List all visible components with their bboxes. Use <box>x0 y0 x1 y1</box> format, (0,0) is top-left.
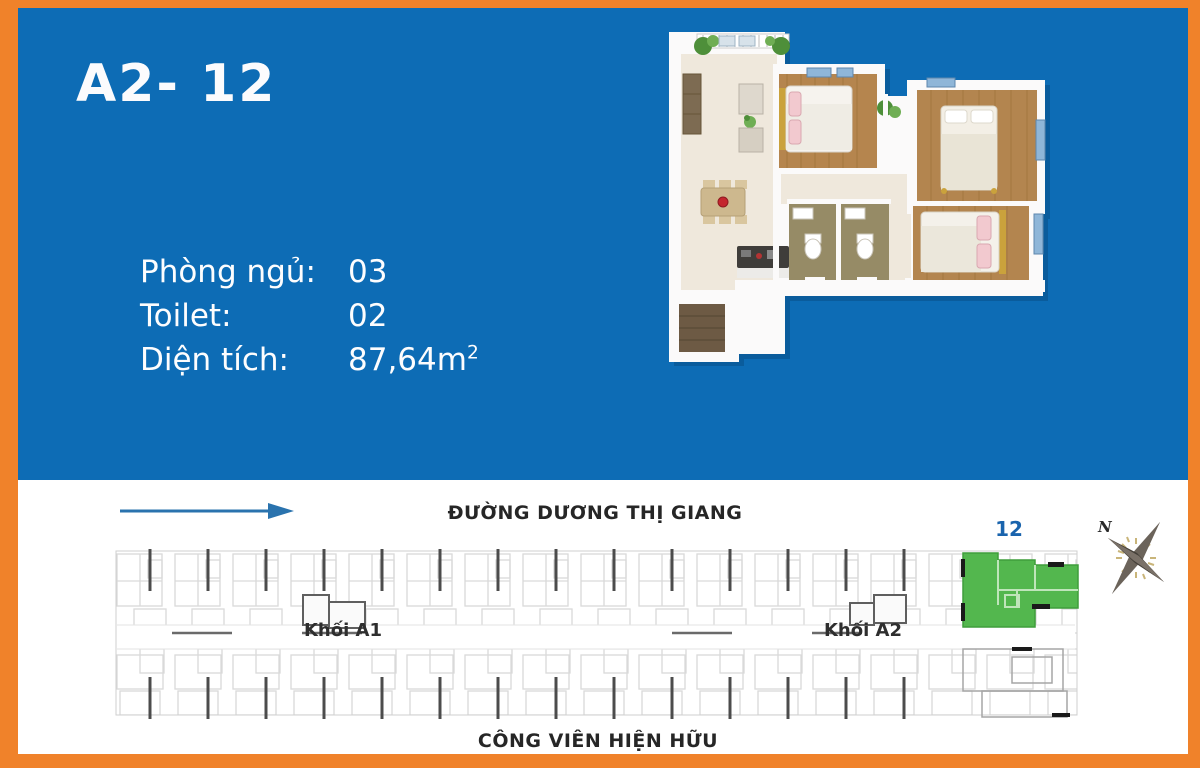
balcony <box>679 304 725 352</box>
spec-label: Diện tích: <box>140 338 348 382</box>
spec-label: Toilet: <box>140 294 348 338</box>
spec-row-toilets: Toilet: 02 <box>140 294 479 338</box>
highlighted-unit-number: 12 <box>985 517 1033 541</box>
bathrooms <box>789 204 889 283</box>
unit-code-title: A2- 12 <box>76 54 276 114</box>
block-a1-label: Khối A1 <box>278 620 408 641</box>
desk <box>739 128 763 152</box>
wardrobe <box>683 74 701 134</box>
park-label: CÔNG VIÊN HIỆN HỮU <box>398 730 798 752</box>
spec-row-area: Diện tích: 87,64m2 <box>140 338 479 382</box>
apartment-3d-floorplan <box>655 8 1075 366</box>
corridor <box>117 625 1075 649</box>
spec-value: 03 <box>348 250 387 294</box>
header-panel: A2- 12 Phòng ngủ: 03 Toilet: 02 Diện tíc… <box>18 8 1188 480</box>
compass-north-label: N <box>1097 518 1113 536</box>
spec-label: Phòng ngủ: <box>140 250 348 294</box>
kitchen-counter <box>737 246 789 278</box>
shelf-cabinet <box>739 84 763 114</box>
dining-table <box>701 180 747 224</box>
bedroom-1 <box>775 74 877 168</box>
bedroom-3 <box>913 206 1029 282</box>
spec-row-bedrooms: Phòng ngủ: 03 <box>140 250 479 294</box>
right-arrow-icon <box>118 500 298 522</box>
spec-value: 87,64m2 <box>348 338 479 382</box>
spec-value: 02 <box>348 294 387 338</box>
flyer-canvas: A2- 12 Phòng ngủ: 03 Toilet: 02 Diện tíc… <box>0 0 1200 768</box>
site-plan-drawing <box>112 545 1082 725</box>
compass-icon: N <box>1096 512 1168 604</box>
specs-list: Phòng ngủ: 03 Toilet: 02 Diện tích: 87,6… <box>140 250 479 382</box>
road-label: ĐƯỜNG DƯƠNG THỊ GIANG <box>400 502 790 524</box>
area-superscript: 2 <box>467 343 479 364</box>
bedroom-2 <box>917 90 1037 206</box>
block-a2-label: Khối A2 <box>798 620 928 641</box>
